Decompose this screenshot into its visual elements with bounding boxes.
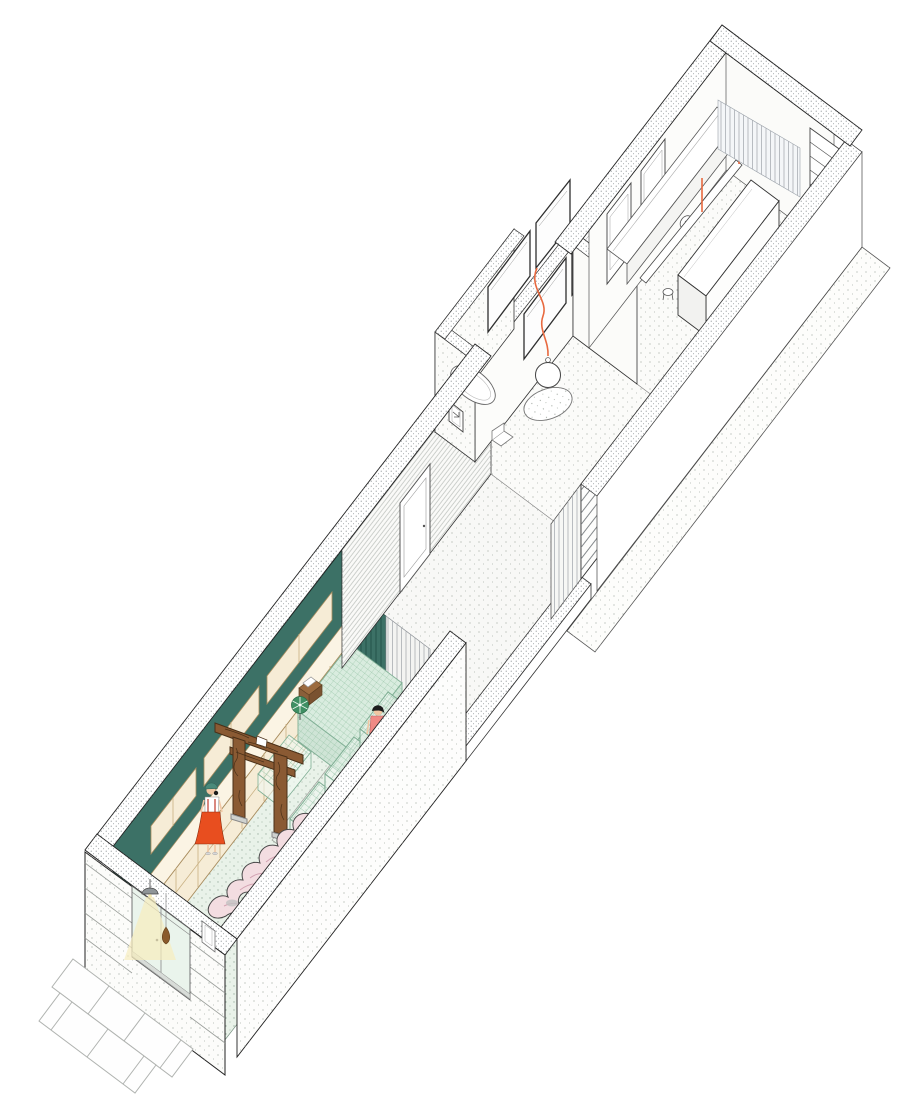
torii-post-right — [274, 753, 287, 836]
illustration-canvas: Axonometric cutaway illustration of a lo… — [0, 0, 909, 1100]
torii-post-left — [233, 737, 245, 818]
axonometric-illustration: Axonometric cutaway illustration of a lo… — [0, 0, 909, 1100]
blouse — [205, 797, 219, 814]
hair-bun — [214, 791, 218, 795]
shoe — [213, 852, 218, 855]
cord-ring — [546, 358, 551, 363]
sculpture-shade — [226, 900, 238, 907]
lamp-bulb — [148, 894, 152, 898]
door-knob — [423, 525, 425, 527]
shoe — [206, 852, 211, 855]
sphere-pendant-lamp — [536, 363, 561, 388]
